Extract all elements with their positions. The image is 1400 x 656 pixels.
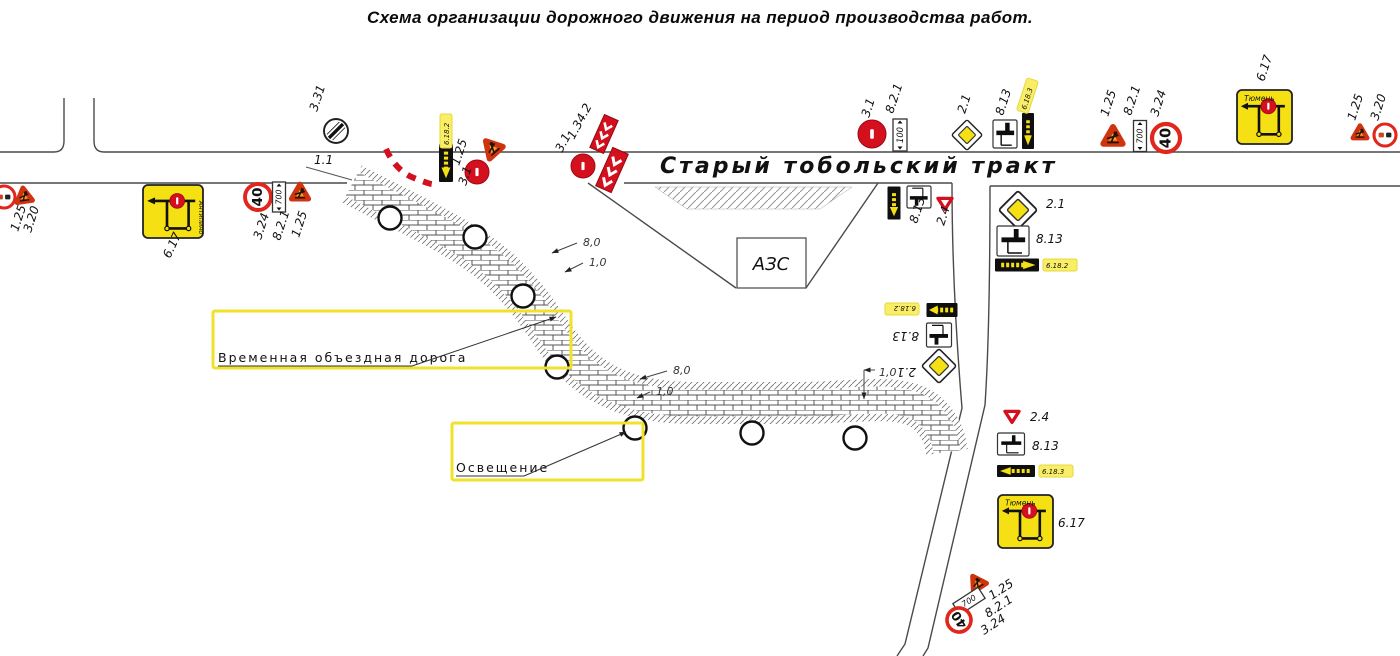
sign-labels: 1.253.206.173.248.2.11.253.311.16.18.21.… [8, 53, 1390, 638]
sign-detour-arrow-p6182h [927, 303, 958, 317]
sign-ref-label: 3.24 [1148, 88, 1170, 118]
sign-label-group: 8.13 [993, 87, 1015, 117]
sign-label-group: 3.24 [1148, 88, 1170, 118]
sign-label-group: 2.4 [1030, 410, 1049, 424]
city-name: Тюмень [1005, 499, 1036, 508]
sign-detour-arrow-p6182h [995, 259, 1039, 272]
sign-ref-label: 6.17 [1058, 516, 1085, 530]
sign-give-way-t24 [1005, 411, 1019, 422]
bypass-road [352, 184, 947, 452]
sign-label-group: 3.1 [859, 96, 878, 118]
sign-label-group: 6.18.3 [1017, 78, 1039, 114]
sign-ref-label: 2.1 [955, 92, 974, 114]
sign-label-group: 1.25 [1098, 88, 1120, 118]
sign-label-group: 2.4 [934, 204, 953, 226]
sign-label-group: 6.18.2 [885, 303, 919, 315]
sign-ref-label: 2.4 [934, 204, 953, 226]
barrier [386, 149, 433, 184]
sign-no-overtaking-c320 [1374, 124, 1396, 146]
sign-ref-label: 6.18.2 [1046, 262, 1069, 270]
sign-label-group: 1.1 [314, 153, 333, 167]
sign-plate-direction-p813 [997, 226, 1029, 256]
sign-ref-label: 6.17 [1254, 53, 1276, 83]
sign-label-group: 3.20 [1368, 92, 1390, 122]
sign-ref-label: 1.25 [1345, 92, 1367, 122]
speed-limit-value: 40 [1158, 128, 1175, 148]
sign-detour-arrow-p6183h [997, 465, 1035, 477]
sign-detour-arrow-p6183v [1022, 113, 1034, 149]
sign-label-group: 8.2.1 [1121, 84, 1144, 117]
sign-detour-arrow-p6182v [888, 187, 901, 220]
sign-ref-label: 1.1 [314, 153, 333, 167]
sign-roadworks-t125 [1103, 127, 1122, 144]
sign-ref-label: 6.18.2 [893, 304, 916, 312]
sign-label-group: 6.18.3 [1039, 465, 1073, 477]
sign-ref-label: 8.2.1 [883, 82, 906, 115]
dimension: 8,0 [640, 364, 691, 379]
callout-bypass-label: Временная объездная дорога [218, 350, 467, 365]
sign-ref-label: 2.4 [1030, 410, 1049, 424]
sign-roadworks-t125 [1353, 126, 1367, 138]
sign-ref-label: 1.34.2 [564, 101, 594, 141]
sign-ref-label: 1.25 [1098, 88, 1120, 118]
sign-label-group: 2.1 [1046, 197, 1065, 211]
sign-plate-direction-p813 [998, 433, 1025, 455]
sign-label-group: 6.17 [1058, 516, 1085, 530]
sign-ref-label: 8.13 [892, 329, 919, 343]
closed-road-section [655, 187, 852, 209]
sign-roadworks-t125 [15, 187, 32, 203]
sign-detour-scheme-s617: Тюмень [1237, 90, 1292, 144]
lighting-pole [512, 285, 535, 308]
sign-label-group: 1.34.2 [564, 101, 594, 141]
sign-label-group: 2.1 [897, 365, 916, 379]
callout-lighting: Освещение [452, 423, 643, 480]
sign-roadworks-t125 [479, 135, 503, 159]
sign-ref-label: 8.2.1 [270, 209, 293, 242]
city-name: Антипино [197, 200, 205, 234]
sign-speed-40-c324: 40 [245, 184, 271, 210]
dimension: 8,0 [552, 236, 601, 253]
sign-roadworks-t125 [292, 184, 309, 199]
dimension-label: 1,0 [656, 385, 674, 398]
speed-limit-value: 40 [250, 188, 266, 207]
city-name: Тюмень [1244, 94, 1275, 103]
sign-label-group: 6.17 [1254, 53, 1276, 83]
traffic-scheme-page: Схема организации дорожного движения на … [0, 0, 1400, 656]
sign-plate-direction-p813 [993, 120, 1017, 148]
roads [0, 98, 1400, 656]
sign-label-group: 8.13 [892, 329, 919, 343]
sign-ref-label: 3.24 [978, 611, 1008, 637]
sign-ref-label: 8.13 [993, 87, 1015, 117]
sign-plate-distance-p821: 100 [893, 119, 907, 151]
sign-speed-40-c324: 40 [1152, 124, 1180, 152]
callout-lighting-label: Освещение [456, 460, 549, 475]
sign-ref-label: 3.1 [859, 96, 878, 118]
lighting-pole [379, 207, 402, 230]
sign-label-group: 8.13 [1036, 232, 1063, 246]
sign-ref-label: 8.13 [1036, 232, 1063, 246]
plate-value: 100 [895, 127, 905, 143]
sign-ref-label: 8.2.1 [1121, 84, 1144, 117]
plate-value: 700 [1136, 129, 1145, 144]
sign-label-group: 8.13 [1032, 439, 1059, 453]
sign-label-group: 3.24 [978, 611, 1008, 637]
sign-end-restrictions-c331 [324, 119, 348, 143]
sign-detour-scheme-s617: Тюмень [998, 495, 1053, 548]
dimension: 1,0 [565, 256, 607, 272]
sign-chevron-chev [596, 147, 629, 192]
sign-ref-label: 2.1 [1046, 197, 1065, 211]
sign-no-entry-c31 [858, 120, 886, 148]
sign-ref-label: 2.1 [897, 365, 916, 379]
sign-label-group: 1.25 [1345, 92, 1367, 122]
sign-ref-label: 6.18.2 [443, 122, 451, 145]
sign-label-group: 2.1 [955, 92, 974, 114]
sign-ref-label: 3.31 [307, 83, 329, 113]
sign-priority-road-d21 [999, 191, 1037, 229]
sign-priority-road-d21 [952, 120, 983, 151]
sign-no-entry-c31 [571, 154, 595, 178]
sign-detour-scheme-s617: Антипино [143, 185, 205, 238]
sign-plate-distance-p821: 700 [1134, 121, 1147, 152]
sign-plate-distance-p821: 700 [273, 182, 286, 212]
sign-no-overtaking-c320 [0, 186, 15, 208]
sign-label-group: 6.18.2 [440, 114, 452, 148]
sign-ref-label: 3.20 [1368, 92, 1390, 122]
sign-label-group: 6.18.2 [1043, 259, 1077, 271]
road-name: Старый тобольский тракт [660, 154, 1057, 179]
lighting-pole [741, 422, 764, 445]
azs-label: АЗС [752, 254, 790, 275]
sign-ref-label: 8.13 [1032, 439, 1059, 453]
lighting-pole [464, 226, 487, 249]
lighting-pole [844, 427, 867, 450]
sign-label-group: 8.2.1 [883, 82, 906, 115]
dimension-label: 1,0 [879, 366, 897, 379]
dimension-label: 8,0 [673, 364, 691, 377]
dimension-label: 8,0 [583, 236, 601, 249]
sign-ref-label: 6.18.3 [1042, 468, 1064, 476]
sign-label-group: 8.2.1 [270, 209, 293, 242]
azs-building: АЗС [737, 238, 806, 288]
sign-plate-direction-p813 [927, 323, 952, 347]
sign-label-group: 3.31 [307, 83, 329, 113]
scheme-drawing: АЗССтарый тобольский трактВременная объе… [0, 0, 1400, 656]
plate-value: 700 [275, 190, 284, 205]
dimension-label: 1,0 [589, 256, 607, 269]
sign-priority-road-d21 [922, 349, 957, 384]
marking-leader [306, 167, 352, 180]
